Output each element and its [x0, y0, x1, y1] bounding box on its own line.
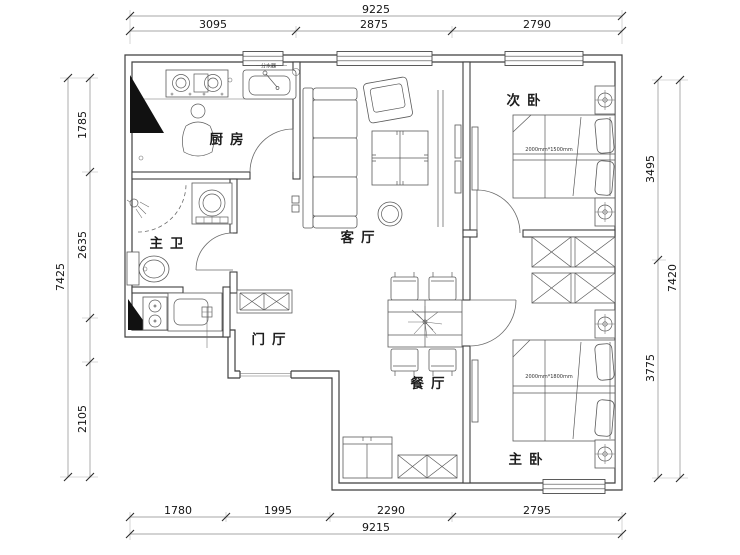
dim-bottom-overall: 9215 — [362, 521, 390, 534]
vanity-east-wall — [223, 287, 230, 337]
bath-south-wall — [132, 287, 183, 293]
dim-top-seg-1: 3095 — [199, 18, 227, 31]
dim-top-overall: 9225 — [362, 3, 390, 16]
shower-icon — [127, 184, 186, 232]
bath-east-wall-lower — [230, 272, 237, 293]
dim-right-overall: 7420 — [666, 264, 679, 292]
dining-chair-icon — [391, 272, 418, 300]
dimensions-right: 3495 3775 7420 — [644, 76, 684, 482]
floor-plan-page: 9225 3095 2875 2790 1780 1995 2290 2795 … — [0, 0, 740, 555]
doors — [196, 129, 520, 380]
kitchen-south-wall — [132, 172, 250, 179]
dining-chair-icon — [391, 349, 418, 376]
sofa-icon — [303, 88, 357, 228]
bed2-icon — [513, 115, 615, 198]
entry-opening — [240, 369, 291, 380]
bedroom2-south-wall-stub — [463, 230, 477, 237]
dim-bottom-seg-3: 2290 — [377, 504, 405, 517]
wardrobe-icon — [532, 237, 615, 267]
master-bedroom-window-icon — [543, 480, 605, 494]
vanity-sink-icon — [168, 293, 222, 348]
dim-left-seg-3: 2105 — [76, 405, 89, 433]
foyer-fixtures — [237, 290, 292, 313]
dim-left-overall: 7425 — [54, 263, 67, 291]
master-bed-size-label: 2000mm*1800mm — [525, 374, 573, 380]
corridor-west-wall-lower — [463, 346, 470, 483]
room-label-bedroom2: 次卧 — [507, 92, 548, 109]
dim-left-seg-1: 1785 — [76, 111, 89, 139]
room-label-dining: 餐厅 — [410, 375, 452, 392]
stool-icon — [378, 202, 402, 226]
mirror-icon — [472, 127, 478, 190]
bedroom2-south-wall — [523, 230, 615, 237]
person-figure-icon — [182, 104, 213, 156]
mirror-icon — [472, 360, 478, 422]
dimensions-left: 7425 1785 2635 2105 — [54, 74, 94, 481]
dining-room-furniture — [343, 272, 462, 478]
floor-plan-drawing: 9225 3095 2875 2790 1780 1995 2290 2795 … — [0, 0, 740, 555]
kitchen-flue-icon — [130, 75, 164, 133]
dim-top-seg-2: 2875 — [360, 18, 388, 31]
dim-right-seg-1: 3495 — [644, 155, 657, 183]
nightstand-icon — [595, 440, 615, 468]
dim-left-seg-2: 2635 — [76, 231, 89, 259]
dimensions-bottom: 1780 1995 2290 2795 9215 — [126, 504, 626, 538]
master-bedroom-door-icon — [470, 300, 516, 346]
tap-box-icon — [143, 297, 167, 330]
kitchen-door-icon — [250, 129, 293, 172]
dim-top-seg-3: 2790 — [523, 18, 551, 31]
nightstand-icon — [595, 198, 615, 226]
nightstand-icon — [595, 310, 615, 338]
washing-machine-icon — [192, 183, 232, 224]
crossed-cabinet-icon — [398, 455, 457, 478]
room-label-kitchen: 厨房 — [210, 131, 251, 148]
armchair-icon — [363, 76, 413, 123]
tv-wall-icon — [438, 90, 461, 227]
dim-bottom-seg-2: 1995 — [264, 504, 292, 517]
living-window-icon — [337, 52, 432, 66]
coffee-table-icon — [372, 131, 428, 185]
bedroom2-west-wall — [463, 62, 470, 233]
room-label-foyer: 门厅 — [252, 331, 293, 348]
dim-bottom-seg-1: 1780 — [164, 504, 192, 517]
dining-chair-icon — [429, 349, 456, 376]
switch-boxes-icon — [292, 196, 299, 212]
sink-note-label: 分水器 — [261, 63, 276, 70]
room-label-master-bedroom: 主卧 — [509, 451, 550, 468]
corridor-west-wall-upper — [463, 237, 470, 300]
bed2-size-label: 2000mm*1500mm — [525, 147, 573, 153]
fridge-icon — [343, 437, 392, 478]
room-label-living: 客厅 — [340, 229, 382, 246]
dim-bottom-seg-4: 2795 — [523, 504, 551, 517]
bedroom-furniture: 2000mm*1500mm — [472, 86, 615, 468]
shoe-cabinet-icon — [237, 290, 292, 313]
dimensions-top: 9225 3095 2875 2790 — [126, 3, 626, 35]
dining-chair-icon — [429, 272, 456, 300]
master-bed-icon — [513, 340, 615, 441]
vanity-fixtures — [128, 293, 222, 348]
toilet-icon — [127, 252, 169, 285]
dim-right-seg-2: 3775 — [644, 354, 657, 382]
nightstand-icon — [595, 86, 615, 114]
wardrobe-icon — [532, 273, 615, 303]
kitchen-sink-icon — [243, 70, 296, 99]
room-label-master-bath: 主卫 — [150, 235, 191, 252]
stove-icon — [166, 70, 228, 97]
living-room-furniture — [292, 76, 461, 228]
bath-door-icon — [196, 233, 233, 270]
bedroom2-window-icon — [505, 52, 583, 66]
